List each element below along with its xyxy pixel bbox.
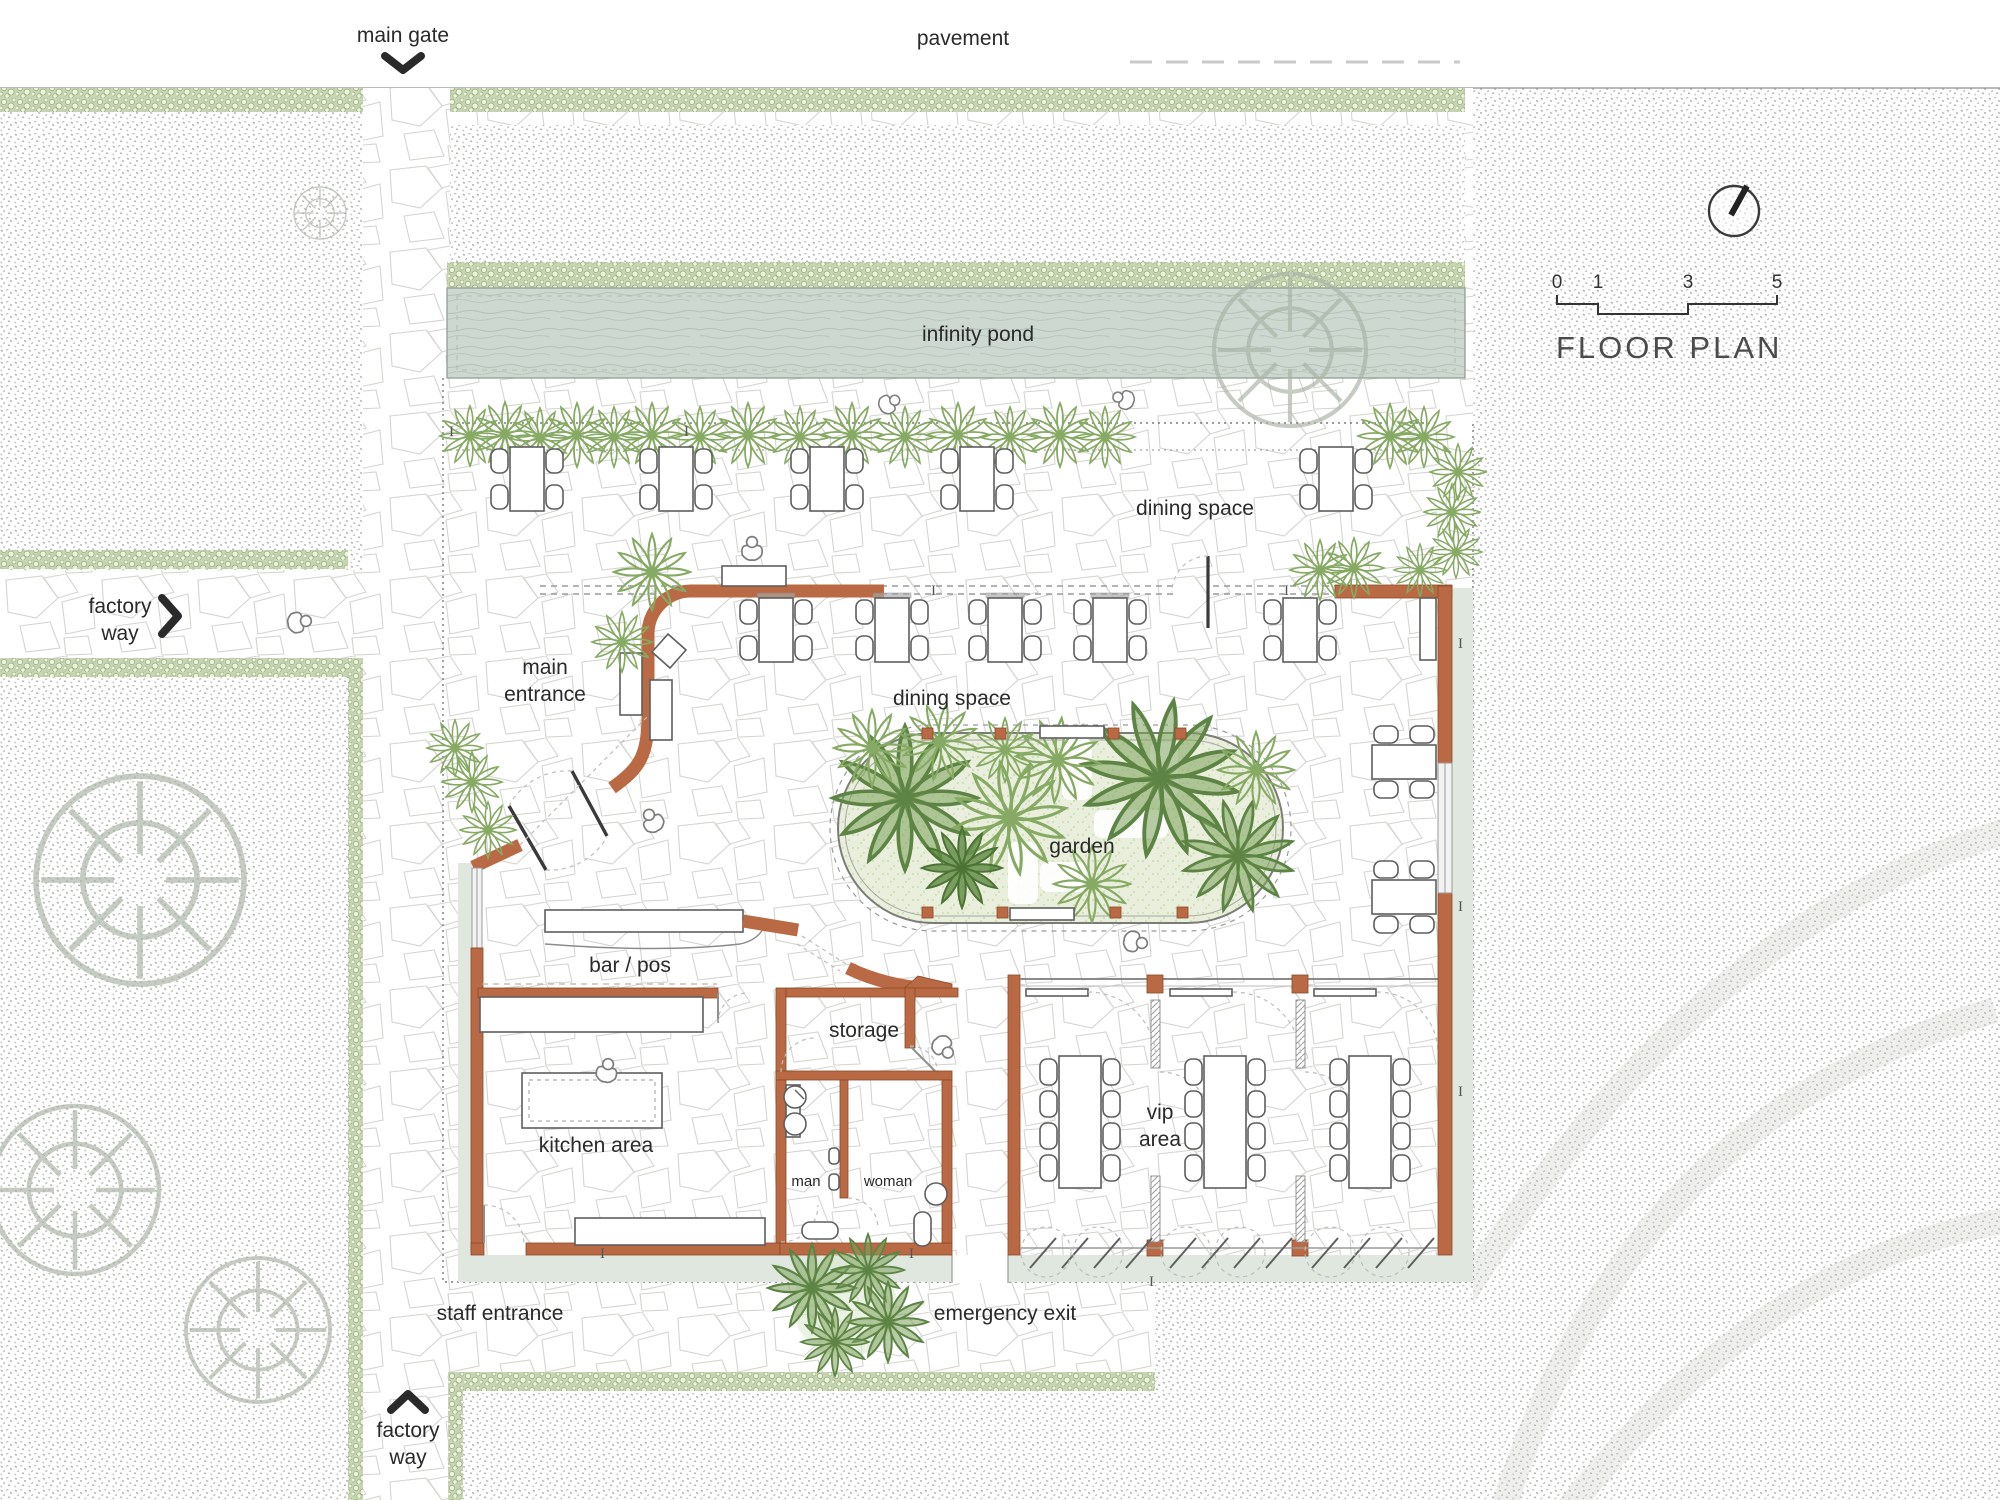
woman-label: woman	[863, 1173, 912, 1190]
factory-way-bottom-label-line1: factory	[376, 1419, 440, 1442]
storage-label: storage	[829, 1019, 899, 1042]
kitchen-area-label: kitchen area	[539, 1134, 654, 1157]
svg-text:I: I	[909, 1246, 914, 1262]
scale-tick-5: 5	[1772, 272, 1783, 293]
main-gate-label: main gate	[357, 24, 449, 47]
factory-way-path-left	[0, 570, 363, 658]
scale-tick-0: 0	[1552, 272, 1563, 293]
svg-text:I: I	[1458, 899, 1463, 915]
bar-counter	[545, 910, 743, 932]
emergency-exit-label: emergency exit	[934, 1302, 1077, 1325]
floor-plan-title: FLOOR PLAN	[1556, 330, 1782, 365]
floor-plan-drawing: II II II II II pavement main gate factor…	[0, 0, 2000, 1500]
dining-space-mid-label: dining space	[893, 687, 1011, 710]
svg-text:I: I	[1458, 1084, 1463, 1100]
factory-way-path-vertical	[363, 88, 450, 1500]
staff-entrance-label: staff entrance	[437, 1302, 564, 1325]
pavement-label: pavement	[917, 27, 1009, 50]
host-stand	[722, 566, 786, 586]
svg-text:I: I	[600, 1246, 605, 1262]
vip-area-label-line1: vip	[1147, 1101, 1174, 1124]
garden-label: garden	[1049, 835, 1114, 858]
svg-text:I: I	[1458, 636, 1463, 652]
main-entrance-label-line1: main	[522, 656, 568, 679]
svg-text:I: I	[449, 424, 454, 440]
main-entrance-label-line2: entrance	[504, 683, 586, 706]
svg-text:I: I	[1284, 583, 1289, 599]
dining-space-top-label: dining space	[1136, 497, 1254, 520]
scale-tick-3: 3	[1683, 272, 1694, 293]
svg-text:I: I	[1149, 1274, 1154, 1290]
factory-way-left-label-line2: way	[100, 622, 139, 645]
factory-way-left-label-line1: factory	[88, 595, 152, 618]
infinity-pond-label: infinity pond	[922, 323, 1034, 346]
man-label: man	[791, 1173, 820, 1190]
factory-way-bottom-label-line2: way	[388, 1446, 427, 1469]
north-indicator-icon	[1709, 186, 1759, 236]
window-bench	[1420, 598, 1436, 660]
scale-tick-1: 1	[1593, 272, 1604, 293]
floor-plan-page: II II II II II pavement main gate factor…	[0, 0, 2000, 1500]
svg-text:I: I	[931, 583, 936, 599]
svg-text:I: I	[684, 424, 689, 440]
emergency-exit-path	[952, 1255, 1008, 1283]
bar-pos-label: bar / pos	[589, 954, 671, 977]
vip-area-label-line2: area	[1139, 1128, 1181, 1151]
